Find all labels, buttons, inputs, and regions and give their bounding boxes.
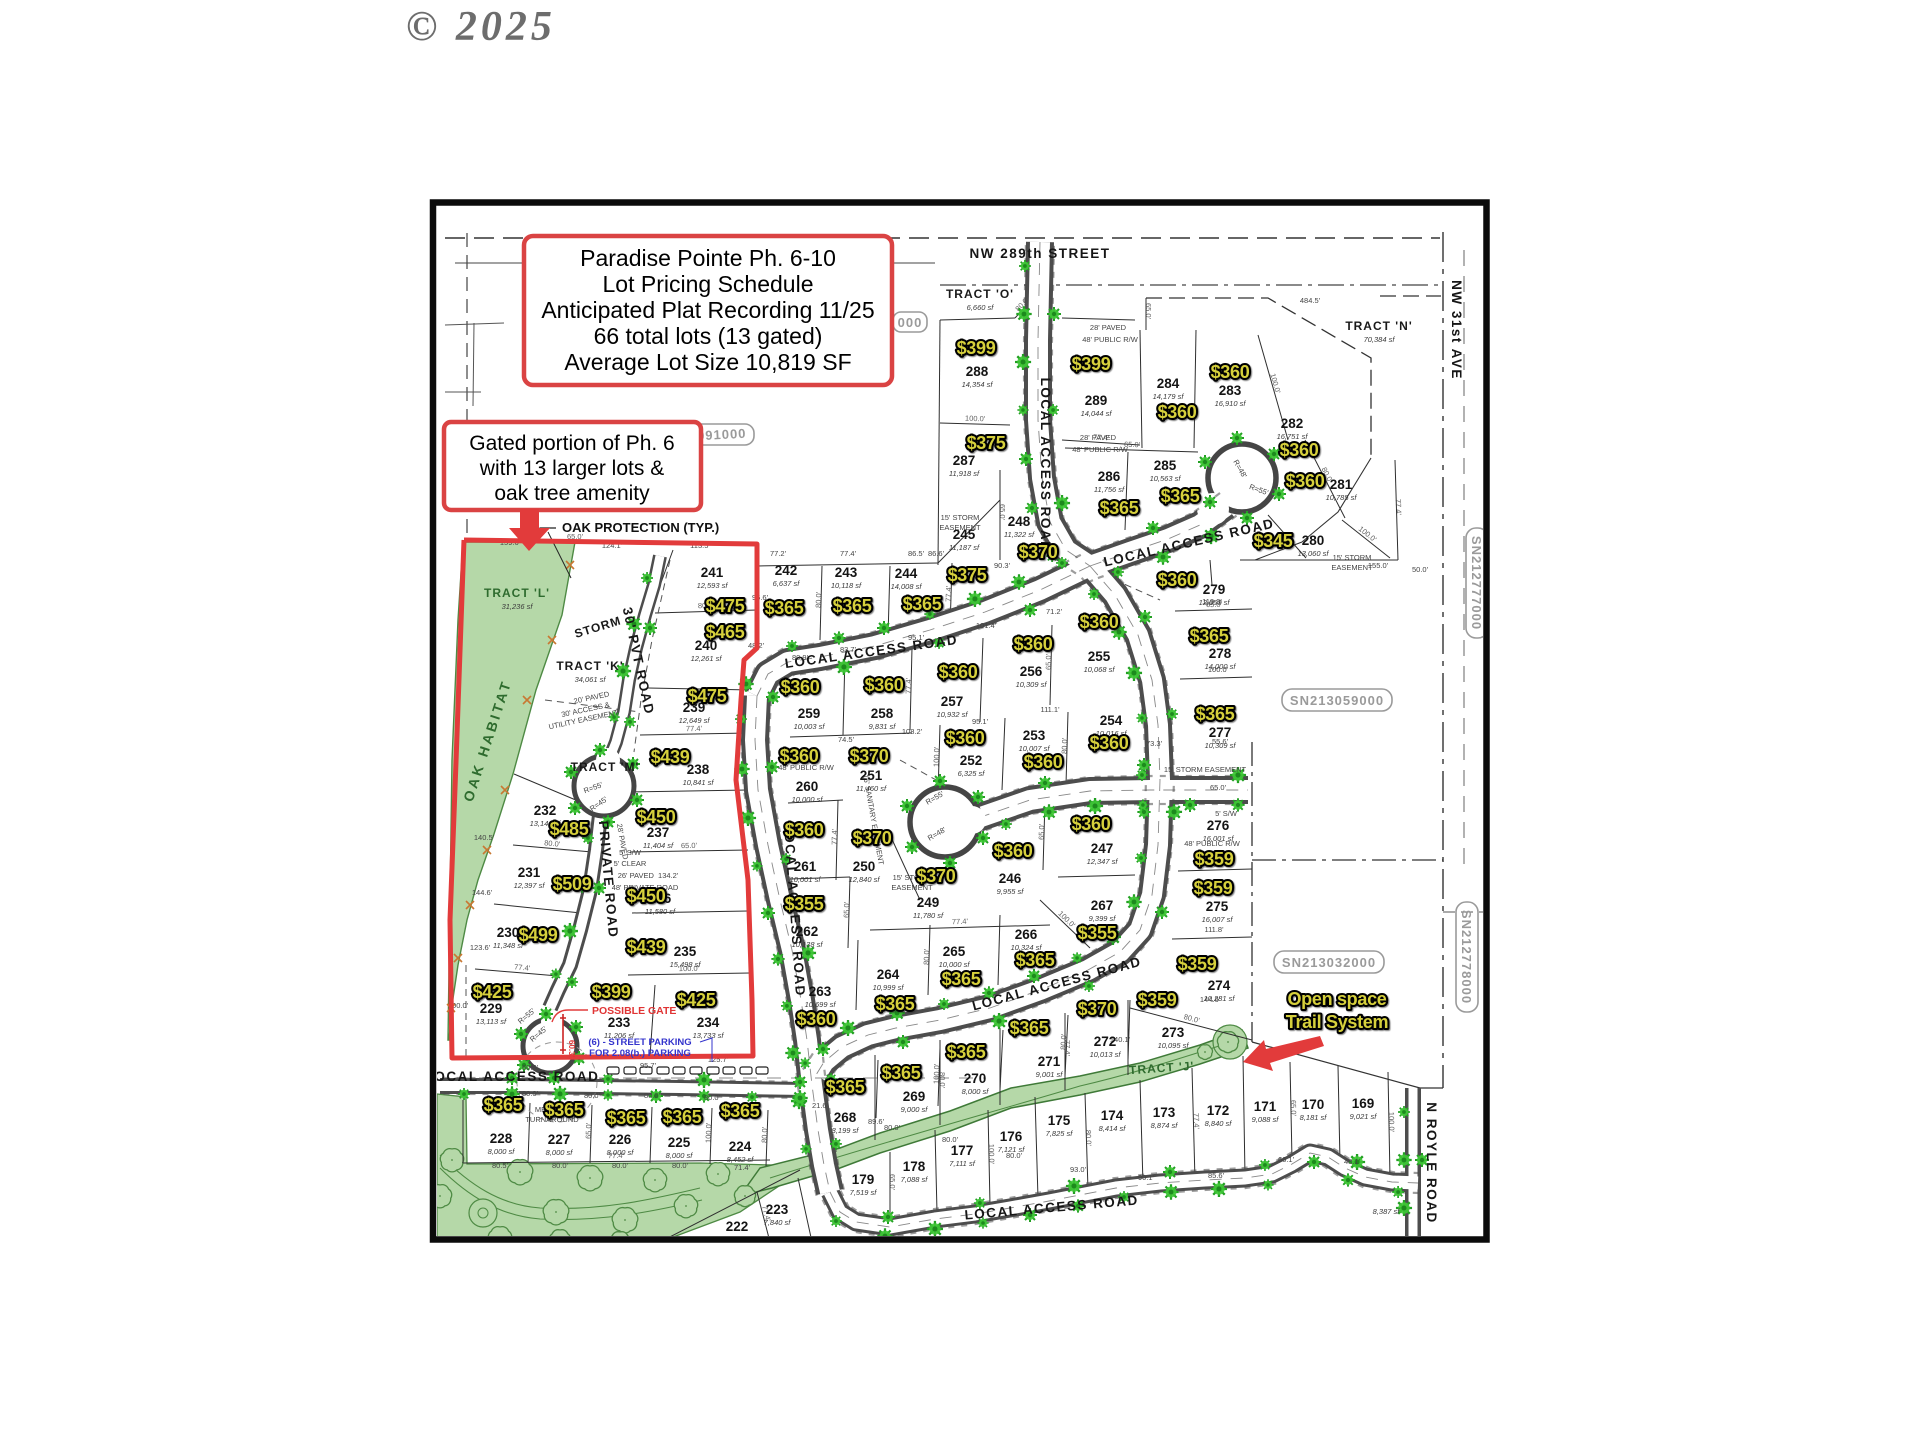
svg-text:$475: $475 [688,686,727,706]
svg-text:$485: $485 [550,819,589,839]
svg-text:77.4': 77.4' [1192,1113,1202,1130]
svg-text:65.0': 65.0' [681,841,698,850]
svg-text:90.3': 90.3' [994,561,1011,570]
svg-text:253: 253 [1023,728,1046,743]
svg-text:80.0': 80.0' [644,1091,661,1100]
svg-text:oak tree amenity: oak tree amenity [494,482,650,505]
svg-text:TRACT 'N': TRACT 'N' [1345,319,1412,333]
svg-text:77.4': 77.4' [904,677,913,694]
svg-text:LOCAL ACCESS ROAD: LOCAL ACCESS ROAD [425,1069,600,1084]
svg-text:10,000 sf: 10,000 sf [939,960,971,969]
svg-text:10,095 sf: 10,095 sf [1158,1041,1190,1050]
svg-text:286: 286 [1098,469,1121,484]
svg-text:95.7': 95.7' [640,1061,657,1070]
svg-text:$359: $359 [1138,990,1177,1010]
svg-text:249: 249 [917,895,940,910]
svg-text:77.4': 77.4' [514,962,531,972]
svg-text:65.0': 65.0' [998,504,1007,521]
svg-text:80.0': 80.0' [760,1126,770,1143]
svg-text:48' PUBLIC R/W: 48' PUBLIC R/W [1072,445,1129,454]
svg-text:266: 266 [1015,927,1038,942]
svg-text:86.5': 86.5' [908,549,925,558]
svg-text:71.4': 71.4' [734,1163,751,1172]
svg-text:7,840 sf: 7,840 sf [764,1218,792,1227]
svg-text:283: 283 [1219,383,1242,398]
svg-text:$399: $399 [592,982,631,1002]
svg-text:TRACT 'L': TRACT 'L' [484,586,550,600]
svg-text:$365: $365 [663,1107,702,1127]
svg-text:242: 242 [775,563,798,578]
svg-text:11,918 sf: 11,918 sf [949,469,980,478]
svg-text:65.0': 65.0' [1144,303,1153,320]
svg-text:7,111 sf: 7,111 sf [949,1159,975,1168]
svg-text:$375: $375 [948,565,987,585]
svg-text:10,068 sf: 10,068 sf [1084,665,1116,674]
svg-text:11,580 sf: 11,580 sf [645,907,676,916]
svg-text:169: 169 [1352,1096,1375,1111]
svg-text:$360: $360 [1280,440,1319,460]
svg-text:80.0': 80.0' [922,948,932,965]
svg-text:14,354 sf: 14,354 sf [962,380,994,389]
svg-text:$360: $360 [1158,402,1197,422]
svg-text:000: 000 [898,315,923,330]
svg-text:233: 233 [608,1015,631,1030]
svg-text:179: 179 [852,1172,875,1187]
svg-text:272: 272 [1094,1034,1117,1049]
svg-text:7,825 sf: 7,825 sf [1046,1129,1074,1138]
svg-text:48' PUBLIC R/W: 48' PUBLIC R/W [1082,335,1139,344]
svg-text:65.0': 65.0' [1210,783,1227,792]
svg-text:$365: $365 [826,1077,865,1097]
svg-text:$365: $365 [882,1063,921,1083]
svg-text:254: 254 [1100,713,1123,728]
svg-text:244: 244 [895,566,918,581]
svg-text:261: 261 [794,859,817,874]
svg-text:Gated portion of Ph. 6: Gated portion of Ph. 6 [469,432,674,455]
svg-text:8,000 sf: 8,000 sf [607,1148,635,1157]
svg-text:263: 263 [809,984,832,999]
svg-text:$360: $360 [1090,733,1129,753]
svg-text:10,563 sf: 10,563 sf [1150,474,1182,483]
svg-text:5' CLEAR: 5' CLEAR [614,859,647,868]
svg-text:$360: $360 [946,728,985,748]
svg-text:$365: $365 [1010,1018,1049,1038]
svg-text:15' STORM: 15' STORM [941,513,980,522]
svg-text:144.6': 144.6' [472,888,493,897]
svg-text:71.2': 71.2' [1046,607,1063,616]
svg-text:$360: $360 [939,662,978,682]
svg-text:14,000 sf: 14,000 sf [1205,662,1237,671]
svg-text:222: 222 [726,1219,749,1234]
svg-text:$370: $370 [853,828,892,848]
svg-text:$345: $345 [1254,531,1293,551]
svg-text:275: 275 [1206,899,1229,914]
svg-text:246: 246 [999,871,1022,886]
svg-text:111.8': 111.8' [1204,925,1224,934]
svg-text:60.5': 60.5' [522,1063,539,1072]
svg-text:$365: $365 [765,598,804,618]
svg-text:11,780 sf: 11,780 sf [913,911,944,920]
svg-text:90.1': 90.1' [1138,1173,1155,1182]
svg-text:74.5': 74.5' [838,735,855,744]
svg-text:(6) - STREET PARKING: (6) - STREET PARKING [588,1037,691,1048]
svg-text:10,138 sf: 10,138 sf [792,940,824,949]
svg-text:$365: $365 [947,1042,986,1062]
svg-text:SN213032000: SN213032000 [1282,955,1376,970]
svg-text:256: 256 [1020,664,1043,679]
svg-text:173: 173 [1153,1105,1176,1120]
svg-text:268: 268 [834,1110,857,1125]
svg-text:10,013 sf: 10,013 sf [1090,1050,1122,1059]
svg-text:$360: $360 [1286,471,1325,491]
svg-text:$365: $365 [903,594,942,614]
svg-text:15' STORM EASEMENT: 15' STORM EASEMENT [1164,765,1247,774]
svg-text:277: 277 [1209,725,1232,740]
svg-text:95.1': 95.1' [972,717,989,726]
svg-text:FOR 2.08(b.) PARKING: FOR 2.08(b.) PARKING [589,1048,691,1059]
svg-text:$370: $370 [850,746,889,766]
svg-text:$355: $355 [785,894,824,914]
svg-text:231: 231 [518,865,541,880]
svg-text:$359: $359 [1195,849,1234,869]
svg-text:$365: $365 [721,1101,760,1121]
svg-text:Lot Pricing Schedule: Lot Pricing Schedule [603,271,814,297]
svg-text:48.1': 48.1' [1344,1157,1361,1166]
svg-text:14,008 sf: 14,008 sf [891,582,923,591]
svg-text:11,322 sf: 11,322 sf [1004,530,1035,539]
svg-text:93.0': 93.0' [1070,1165,1087,1174]
svg-text:28' PAVED: 28' PAVED [1090,323,1127,332]
svg-text:175: 175 [1048,1113,1071,1128]
svg-text:OAK PROTECTION (TYP.): OAK PROTECTION (TYP.) [562,520,719,535]
svg-text:$355: $355 [1078,923,1117,943]
svg-text:8,199 sf: 8,199 sf [832,1126,860,1135]
svg-text:6,637 sf: 6,637 sf [773,579,801,588]
svg-text:229: 229 [480,1001,503,1016]
svg-text:$439: $439 [627,937,666,957]
svg-text:$365: $365 [1161,486,1200,506]
svg-text:77.4': 77.4' [840,549,857,558]
svg-text:123.6': 123.6' [470,943,491,952]
svg-text:65.0': 65.0' [1289,1100,1298,1117]
svg-text:50.0': 50.0' [1412,565,1429,574]
svg-text:EASEMENT: EASEMENT [1331,563,1373,572]
svg-text:Trail System: Trail System [1286,1012,1388,1032]
svg-text:80.0': 80.0' [1084,1130,1094,1147]
svg-text:77.4': 77.4' [1394,499,1404,516]
svg-text:34,061 sf: 34,061 sf [575,675,607,684]
svg-text:5' S/W: 5' S/W [619,848,642,857]
svg-text:13,113 sf: 13,113 sf [476,1017,507,1026]
svg-text:177: 177 [951,1143,974,1158]
svg-text:155.0': 155.0' [1368,561,1389,570]
svg-text:80.0': 80.0' [704,1093,721,1102]
svg-text:80.0': 80.0' [522,1089,539,1098]
svg-text:77.4': 77.4' [1063,1040,1072,1057]
svg-text:274: 274 [1208,978,1231,993]
svg-text:14,179 sf: 14,179 sf [1153,392,1185,401]
svg-text:241: 241 [701,565,724,580]
svg-text:80.5': 80.5' [492,1161,509,1170]
svg-text:258: 258 [871,706,894,721]
svg-text:251: 251 [860,768,883,783]
svg-text:273: 273 [1162,1025,1185,1040]
svg-text:66.1': 66.1' [1278,1155,1295,1164]
svg-text:POSSIBLE GATE: POSSIBLE GATE [592,1005,676,1017]
svg-text:$425: $425 [473,982,512,1002]
svg-text:$425: $425 [677,990,716,1010]
svg-text:243: 243 [835,565,858,580]
svg-text:10,699 sf: 10,699 sf [805,1000,837,1009]
svg-text:$359: $359 [1178,954,1217,974]
svg-text:$370: $370 [917,866,956,886]
svg-text:223: 223 [766,1202,789,1217]
svg-text:80.0': 80.0' [584,1091,601,1100]
svg-text:65.0': 65.0' [842,901,852,918]
svg-text:237: 237 [647,825,670,840]
svg-text:255: 255 [1088,649,1111,664]
svg-text:13,733 sf: 13,733 sf [693,1031,725,1040]
svg-text:$360: $360 [994,841,1033,861]
svg-text:TRACT 'M': TRACT 'M' [571,760,640,774]
svg-text:265: 265 [943,944,966,959]
svg-text:9,021 sf: 9,021 sf [1350,1112,1378,1121]
svg-text:$360: $360 [1072,814,1111,834]
svg-text:10,003 sf: 10,003 sf [794,722,826,731]
svg-text:$360: $360 [785,820,824,840]
svg-text:$365: $365 [1196,704,1235,724]
svg-text:279: 279 [1203,582,1226,597]
svg-text:SN212778000: SN212778000 [1459,910,1474,1004]
svg-text:$475: $475 [706,596,745,616]
svg-text:091000: 091000 [697,426,747,444]
svg-text:262: 262 [796,924,819,939]
svg-text:$360: $360 [865,675,904,695]
svg-text:287: 287 [953,453,976,468]
svg-text:288: 288 [966,364,989,379]
svg-text:100.0': 100.0' [704,1122,714,1143]
svg-text:12,397 sf: 12,397 sf [514,881,546,890]
svg-text:77.4': 77.4' [686,724,703,733]
svg-text:10,281 sf: 10,281 sf [1204,994,1236,1003]
svg-text:270: 270 [964,1071,987,1086]
svg-text:21.6': 21.6' [812,1101,829,1110]
svg-text:26' PAVED 134.2': 26' PAVED 134.2' [618,871,679,880]
svg-text:260: 260 [796,779,819,794]
svg-text:252: 252 [960,753,983,768]
svg-text:282: 282 [1281,416,1304,431]
svg-text:100.0': 100.0' [1387,1112,1396,1133]
svg-text:80.0': 80.0' [544,838,561,848]
svg-text:$365: $365 [545,1100,584,1120]
svg-text:13,060 sf: 13,060 sf [1298,549,1330,558]
svg-text:226: 226 [609,1132,632,1147]
svg-text:250: 250 [853,859,876,874]
svg-text:31,236 sf: 31,236 sf [502,602,534,611]
svg-text:NW 31st AVE: NW 31st AVE [1449,280,1464,380]
svg-text:8,874 sf: 8,874 sf [1151,1121,1179,1130]
svg-text:$450: $450 [637,807,676,827]
svg-text:$360: $360 [781,677,820,697]
svg-text:$465: $465 [706,622,745,642]
svg-text:$360: $360 [1158,570,1197,590]
svg-text:83.7': 83.7' [840,645,857,654]
svg-text:80.0': 80.0' [672,1161,689,1170]
svg-text:$375: $375 [967,433,1006,453]
svg-text:280: 280 [1302,533,1325,548]
svg-text:9,000 sf: 9,000 sf [901,1105,929,1114]
svg-text:484.5': 484.5' [1300,296,1321,305]
svg-text:10,118 sf: 10,118 sf [831,581,862,590]
svg-text:8,000 sf: 8,000 sf [488,1147,516,1156]
svg-text:12,593 sf: 12,593 sf [697,581,729,590]
svg-text:176: 176 [1000,1129,1023,1144]
svg-text:10,309 sf: 10,309 sf [1205,741,1237,750]
svg-text:227: 227 [548,1132,571,1147]
svg-text:10,932 sf: 10,932 sf [937,710,969,719]
svg-text:10,309 sf: 10,309 sf [1016,680,1048,689]
svg-text:12,261 sf: 12,261 sf [691,654,723,663]
svg-text:9,831 sf: 9,831 sf [869,722,897,731]
svg-text:16,001 sf: 16,001 sf [1203,834,1235,843]
svg-text:$365: $365 [1016,950,1055,970]
svg-text:16,007 sf: 16,007 sf [1202,915,1234,924]
svg-text:245: 245 [953,527,976,542]
svg-text:65.0': 65.0' [584,1122,594,1139]
svg-text:$365: $365 [942,969,981,989]
svg-text:247: 247 [1091,841,1114,856]
svg-text:100.0': 100.0' [965,414,986,424]
svg-text:$365: $365 [607,1108,646,1128]
svg-text:11,756 sf: 11,756 sf [1094,485,1125,494]
svg-text:5' S/W: 5' S/W [1215,809,1238,818]
svg-text:232: 232 [534,803,557,818]
svg-text:65.0': 65.0' [888,1174,897,1191]
svg-text:77.2': 77.2' [770,549,787,558]
svg-text:LOCAL ACCESS ROAD: LOCAL ACCESS ROAD [1038,378,1053,553]
svg-text:$399: $399 [957,338,996,358]
svg-text:$370: $370 [1019,542,1058,562]
svg-text:285: 285 [1154,458,1177,473]
svg-text:12,840 sf: 12,840 sf [849,875,881,884]
svg-text:269: 269 [903,1089,926,1104]
svg-text:TRACT 'K': TRACT 'K' [556,659,623,673]
svg-text:Paradise Pointe Ph. 6-10: Paradise Pointe Ph. 6-10 [580,245,836,271]
svg-text:SN213059000: SN213059000 [1290,693,1384,708]
svg-text:257: 257 [941,694,964,709]
svg-text:$360: $360 [797,1009,836,1029]
svg-text:276: 276 [1207,818,1230,833]
svg-text:60.3': 60.3' [567,1040,576,1058]
svg-text:$450: $450 [627,886,666,906]
svg-text:9,001 sf: 9,001 sf [1036,1070,1064,1079]
svg-text:TRACT 'O': TRACT 'O' [946,287,1014,301]
svg-text:10,999 sf: 10,999 sf [873,983,905,992]
svg-text:65.0': 65.0' [1037,823,1047,840]
svg-text:10,785 sf: 10,785 sf [1326,493,1358,502]
svg-text:NW 289th STREET: NW 289th STREET [969,246,1110,261]
svg-text:$365: $365 [833,596,872,616]
svg-text:$360: $360 [780,746,819,766]
svg-text:12,053 sf: 12,053 sf [1199,598,1231,607]
svg-text:80.0': 80.0' [552,1161,569,1170]
svg-text:$365: $365 [1190,626,1229,646]
svg-text:14,044 sf: 14,044 sf [1081,409,1113,418]
svg-text:28' PAVED: 28' PAVED [1080,433,1117,442]
svg-text:$365: $365 [876,994,915,1014]
svg-text:Anticipated Plat Recording 11/: Anticipated Plat Recording 11/25 [541,297,874,323]
svg-text:SN212777000: SN212777000 [1469,536,1484,630]
svg-text:89.6': 89.6' [868,1117,885,1126]
svg-text:284: 284 [1157,376,1180,391]
svg-text:80.0': 80.0' [814,591,824,608]
svg-text:$370: $370 [1078,999,1117,1019]
svg-text:8,387 sf: 8,387 sf [1373,1207,1401,1216]
svg-text:7,121 sf: 7,121 sf [998,1145,1026,1154]
svg-text:9,955 sf: 9,955 sf [997,887,1025,896]
svg-text:108.2': 108.2' [902,727,923,736]
svg-text:15,498 sf: 15,498 sf [670,960,702,969]
svg-text:80.0': 80.0' [884,1123,901,1132]
svg-text:$365: $365 [1100,498,1139,518]
svg-text:101.4': 101.4' [976,621,997,630]
svg-text:264: 264 [877,967,900,982]
svg-text:11,404 sf: 11,404 sf [643,841,674,850]
svg-text:80.0': 80.0' [612,1161,629,1170]
svg-text:Open space: Open space [1287,989,1386,1009]
svg-text:259: 259 [798,706,821,721]
svg-text:8,000 sf: 8,000 sf [962,1087,990,1096]
svg-text:$360: $360 [1211,362,1250,382]
svg-text:with 13 larger lots &: with 13 larger lots & [479,457,664,480]
svg-text:$399: $399 [1072,354,1111,374]
svg-text:80.9': 80.9' [792,653,809,662]
svg-text:N ROYLE ROAD: N ROYLE ROAD [1424,1102,1439,1224]
svg-text:$499: $499 [519,925,558,945]
svg-text:100.0': 100.0' [987,1144,996,1165]
svg-text:248: 248 [1008,514,1031,529]
svg-text:85.6': 85.6' [1208,1171,1225,1180]
svg-text:© 2025: © 2025 [406,4,556,50]
svg-text:$360: $360 [1014,634,1053,654]
svg-text:8,414 sf: 8,414 sf [1099,1124,1127,1133]
svg-text:12,347 sf: 12,347 sf [1087,857,1119,866]
svg-text:224: 224 [729,1139,752,1154]
svg-text:8,181 sf: 8,181 sf [1300,1113,1328,1122]
svg-text:12,649 sf: 12,649 sf [679,716,711,725]
svg-text:86.6': 86.6' [928,549,945,558]
svg-text:174: 174 [1101,1108,1124,1123]
svg-text:16,910 sf: 16,910 sf [1215,399,1247,408]
svg-text:271: 271 [1038,1054,1061,1069]
svg-text:6,325 sf: 6,325 sf [958,769,986,778]
svg-text:11,187 sf: 11,187 sf [949,543,980,552]
svg-text:$365: $365 [484,1095,523,1115]
svg-text:172: 172 [1207,1103,1230,1118]
svg-text:238: 238 [687,762,710,777]
svg-text:235: 235 [674,944,697,959]
svg-text:9,088 sf: 9,088 sf [1252,1115,1280,1124]
svg-text:289: 289 [1085,393,1108,408]
svg-text:228: 228 [490,1131,513,1146]
svg-text:278: 278 [1209,646,1232,661]
svg-text:77.4': 77.4' [830,828,839,845]
svg-text:Average Lot Size 10,819 SF: Average Lot Size 10,819 SF [564,349,851,375]
svg-text:234: 234 [697,1015,720,1030]
svg-text:10,001 sf: 10,001 sf [790,875,822,884]
svg-text:10,841 sf: 10,841 sf [683,778,715,787]
svg-text:267: 267 [1091,898,1114,913]
